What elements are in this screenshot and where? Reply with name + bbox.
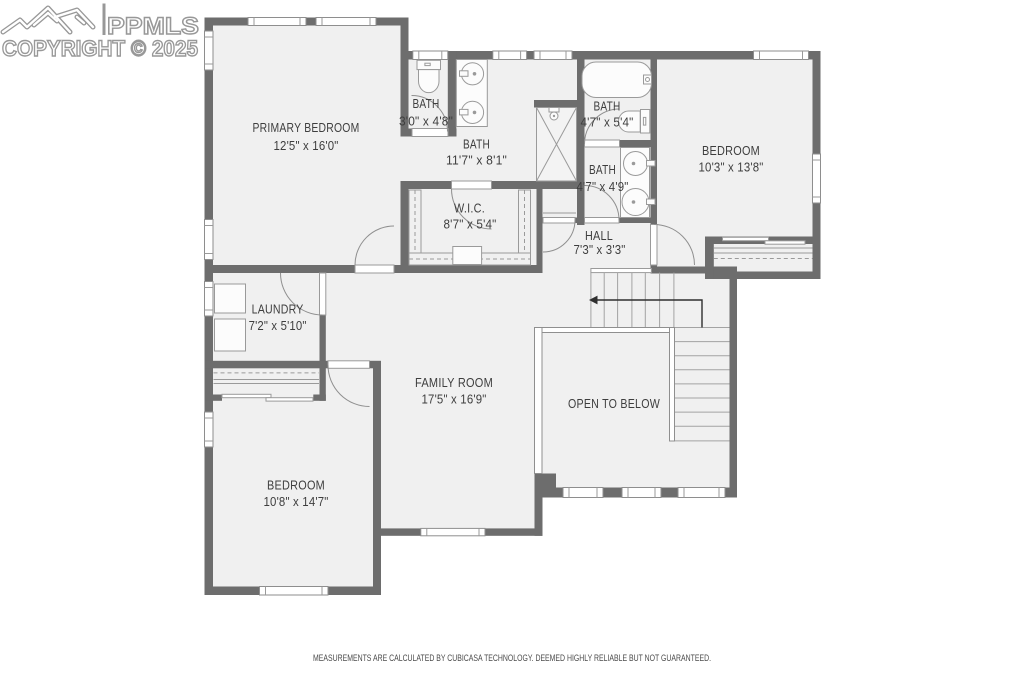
svg-text:10'8" x 14'7": 10'8" x 14'7" <box>264 494 329 509</box>
svg-text:PRIMARY BEDROOM: PRIMARY BEDROOM <box>253 120 360 135</box>
svg-text:BATH: BATH <box>463 137 490 152</box>
svg-text:OPEN TO BELOW: OPEN TO BELOW <box>568 396 660 411</box>
svg-text:BEDROOM: BEDROOM <box>702 143 760 158</box>
svg-text:17'5" x 16'9": 17'5" x 16'9" <box>422 392 487 407</box>
svg-text:4'7" x 4'9": 4'7" x 4'9" <box>577 179 629 194</box>
svg-text:LAUNDRY: LAUNDRY <box>252 302 304 317</box>
svg-text:BEDROOM: BEDROOM <box>267 478 325 493</box>
svg-text:COPYRIGHT © 2025: COPYRIGHT © 2025 <box>2 36 198 61</box>
svg-text:BATH: BATH <box>589 162 616 177</box>
svg-text:11'7" x 8'1": 11'7" x 8'1" <box>446 153 507 168</box>
svg-text:8'7" x 5'4": 8'7" x 5'4" <box>444 217 497 232</box>
svg-text:W.I.C.: W.I.C. <box>454 201 485 216</box>
svg-text:4'7" x 5'4": 4'7" x 5'4" <box>581 115 634 130</box>
svg-text:BATH: BATH <box>594 99 621 114</box>
svg-text:7'2" x 5'10": 7'2" x 5'10" <box>249 318 307 333</box>
svg-text:HALL: HALL <box>585 228 613 243</box>
svg-text:12'5" x 16'0": 12'5" x 16'0" <box>274 138 339 153</box>
svg-text:7'3" x 3'3": 7'3" x 3'3" <box>574 242 626 257</box>
svg-text:3'0" x 4'8": 3'0" x 4'8" <box>399 114 453 129</box>
svg-text:MEASUREMENTS ARE CALCULATED BY: MEASUREMENTS ARE CALCULATED BY CUBICASA … <box>313 653 711 663</box>
svg-text:BATH: BATH <box>413 96 440 111</box>
svg-text:FAMILY ROOM: FAMILY ROOM <box>415 375 493 390</box>
svg-text:10'3" x 13'8": 10'3" x 13'8" <box>699 160 764 175</box>
